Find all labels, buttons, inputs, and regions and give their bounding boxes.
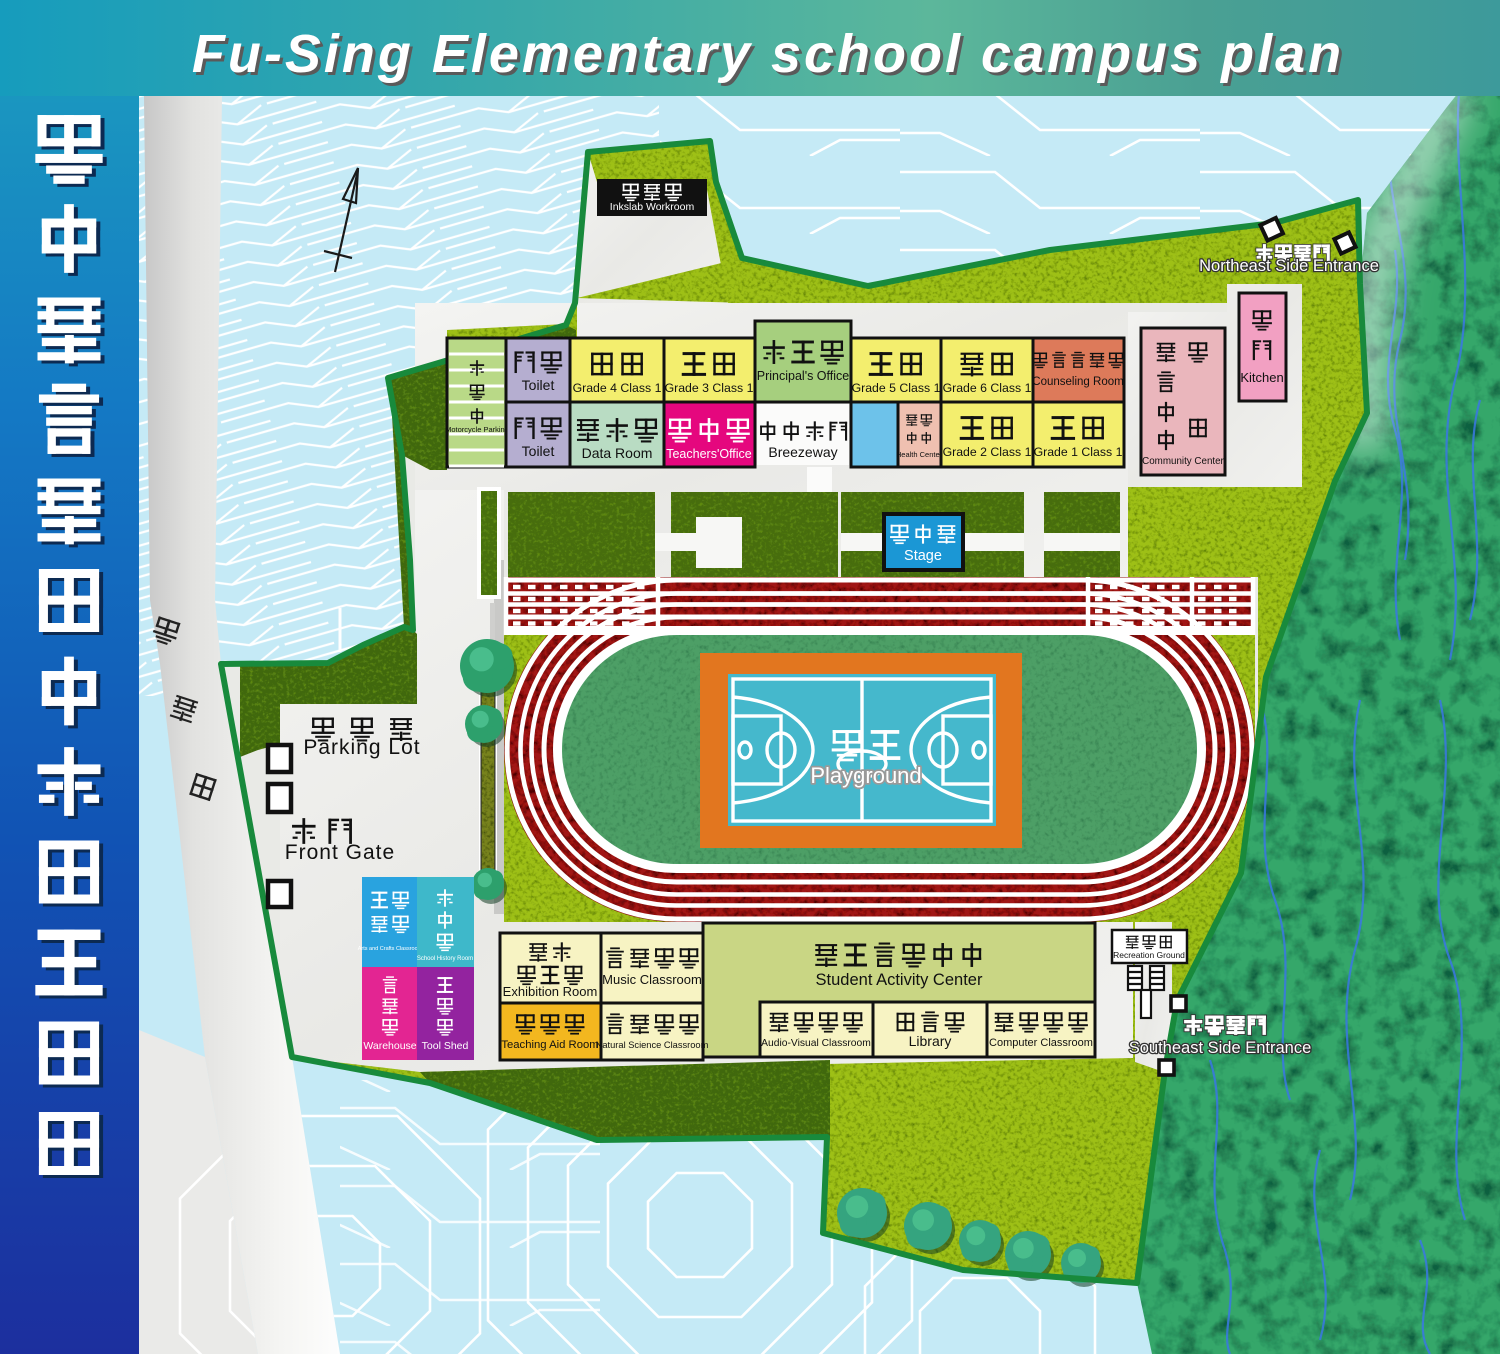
svg-text:Grade 3 Class 1: Grade 3 Class 1 bbox=[665, 381, 754, 395]
svg-text:Health Center: Health Center bbox=[896, 450, 943, 459]
svg-text:Southeast Side Entrance: Southeast Side Entrance bbox=[1129, 1039, 1312, 1057]
svg-text:School History Room: School History Room bbox=[417, 956, 473, 962]
svg-text:Toilet: Toilet bbox=[522, 443, 555, 459]
svg-text:Northeast Side Entrance: Northeast Side Entrance bbox=[1199, 257, 1379, 275]
svg-text:Front Gate: Front Gate bbox=[285, 841, 395, 864]
svg-text:Student Activity Center: Student Activity Center bbox=[816, 971, 983, 989]
svg-text:Grade 2 Class 1: Grade 2 Class 1 bbox=[943, 445, 1032, 459]
svg-text:Music Classroom: Music Classroom bbox=[602, 972, 702, 987]
svg-text:Tool Shed: Tool Shed bbox=[422, 1040, 469, 1052]
svg-text:Exhibition Room: Exhibition Room bbox=[503, 984, 598, 999]
svg-text:Grade 6 Class 1: Grade 6 Class 1 bbox=[943, 381, 1032, 395]
svg-text:Warehouse: Warehouse bbox=[363, 1040, 416, 1052]
svg-text:Community Center: Community Center bbox=[1142, 456, 1224, 467]
svg-text:Fu-Sing Elementary school camp: Fu-Sing Elementary school campus plan bbox=[192, 24, 1344, 84]
svg-text:Toilet: Toilet bbox=[522, 377, 555, 393]
svg-text:Inkslab Workroom: Inkslab Workroom bbox=[610, 201, 695, 213]
svg-text:Recreation Ground: Recreation Ground bbox=[1113, 950, 1185, 960]
svg-text:Stage: Stage bbox=[904, 548, 942, 564]
svg-text:Natural Science Classroom: Natural Science Classroom bbox=[596, 1040, 709, 1050]
svg-text:Data Room: Data Room bbox=[582, 445, 653, 461]
svg-text:Playground: Playground bbox=[810, 763, 921, 788]
svg-text:Computer Classroom: Computer Classroom bbox=[989, 1037, 1093, 1049]
svg-text:Grade 5 Class 1: Grade 5 Class 1 bbox=[852, 381, 941, 395]
svg-text:Parking Lot: Parking Lot bbox=[303, 736, 420, 759]
svg-text:Audio-Visual Classroom: Audio-Visual Classroom bbox=[761, 1038, 871, 1049]
svg-text:Grade 1 Class 1: Grade 1 Class 1 bbox=[1034, 445, 1123, 459]
svg-text:Counseling Room: Counseling Room bbox=[1032, 376, 1123, 388]
svg-text:Arts and Crafts Classroom: Arts and Crafts Classroom bbox=[358, 946, 423, 952]
svg-text:Teaching Aid Room: Teaching Aid Room bbox=[501, 1039, 598, 1051]
svg-text:Teachers'Office: Teachers'Office bbox=[666, 447, 752, 461]
svg-text:Motorcycle Parking: Motorcycle Parking bbox=[445, 425, 509, 434]
svg-text:Kitchen: Kitchen bbox=[1240, 370, 1283, 385]
svg-text:Library: Library bbox=[909, 1033, 952, 1049]
svg-text:Breezeway: Breezeway bbox=[768, 444, 837, 460]
svg-text:Principal's Office: Principal's Office bbox=[757, 369, 850, 383]
svg-text:Grade 4 Class 1: Grade 4 Class 1 bbox=[573, 381, 662, 395]
